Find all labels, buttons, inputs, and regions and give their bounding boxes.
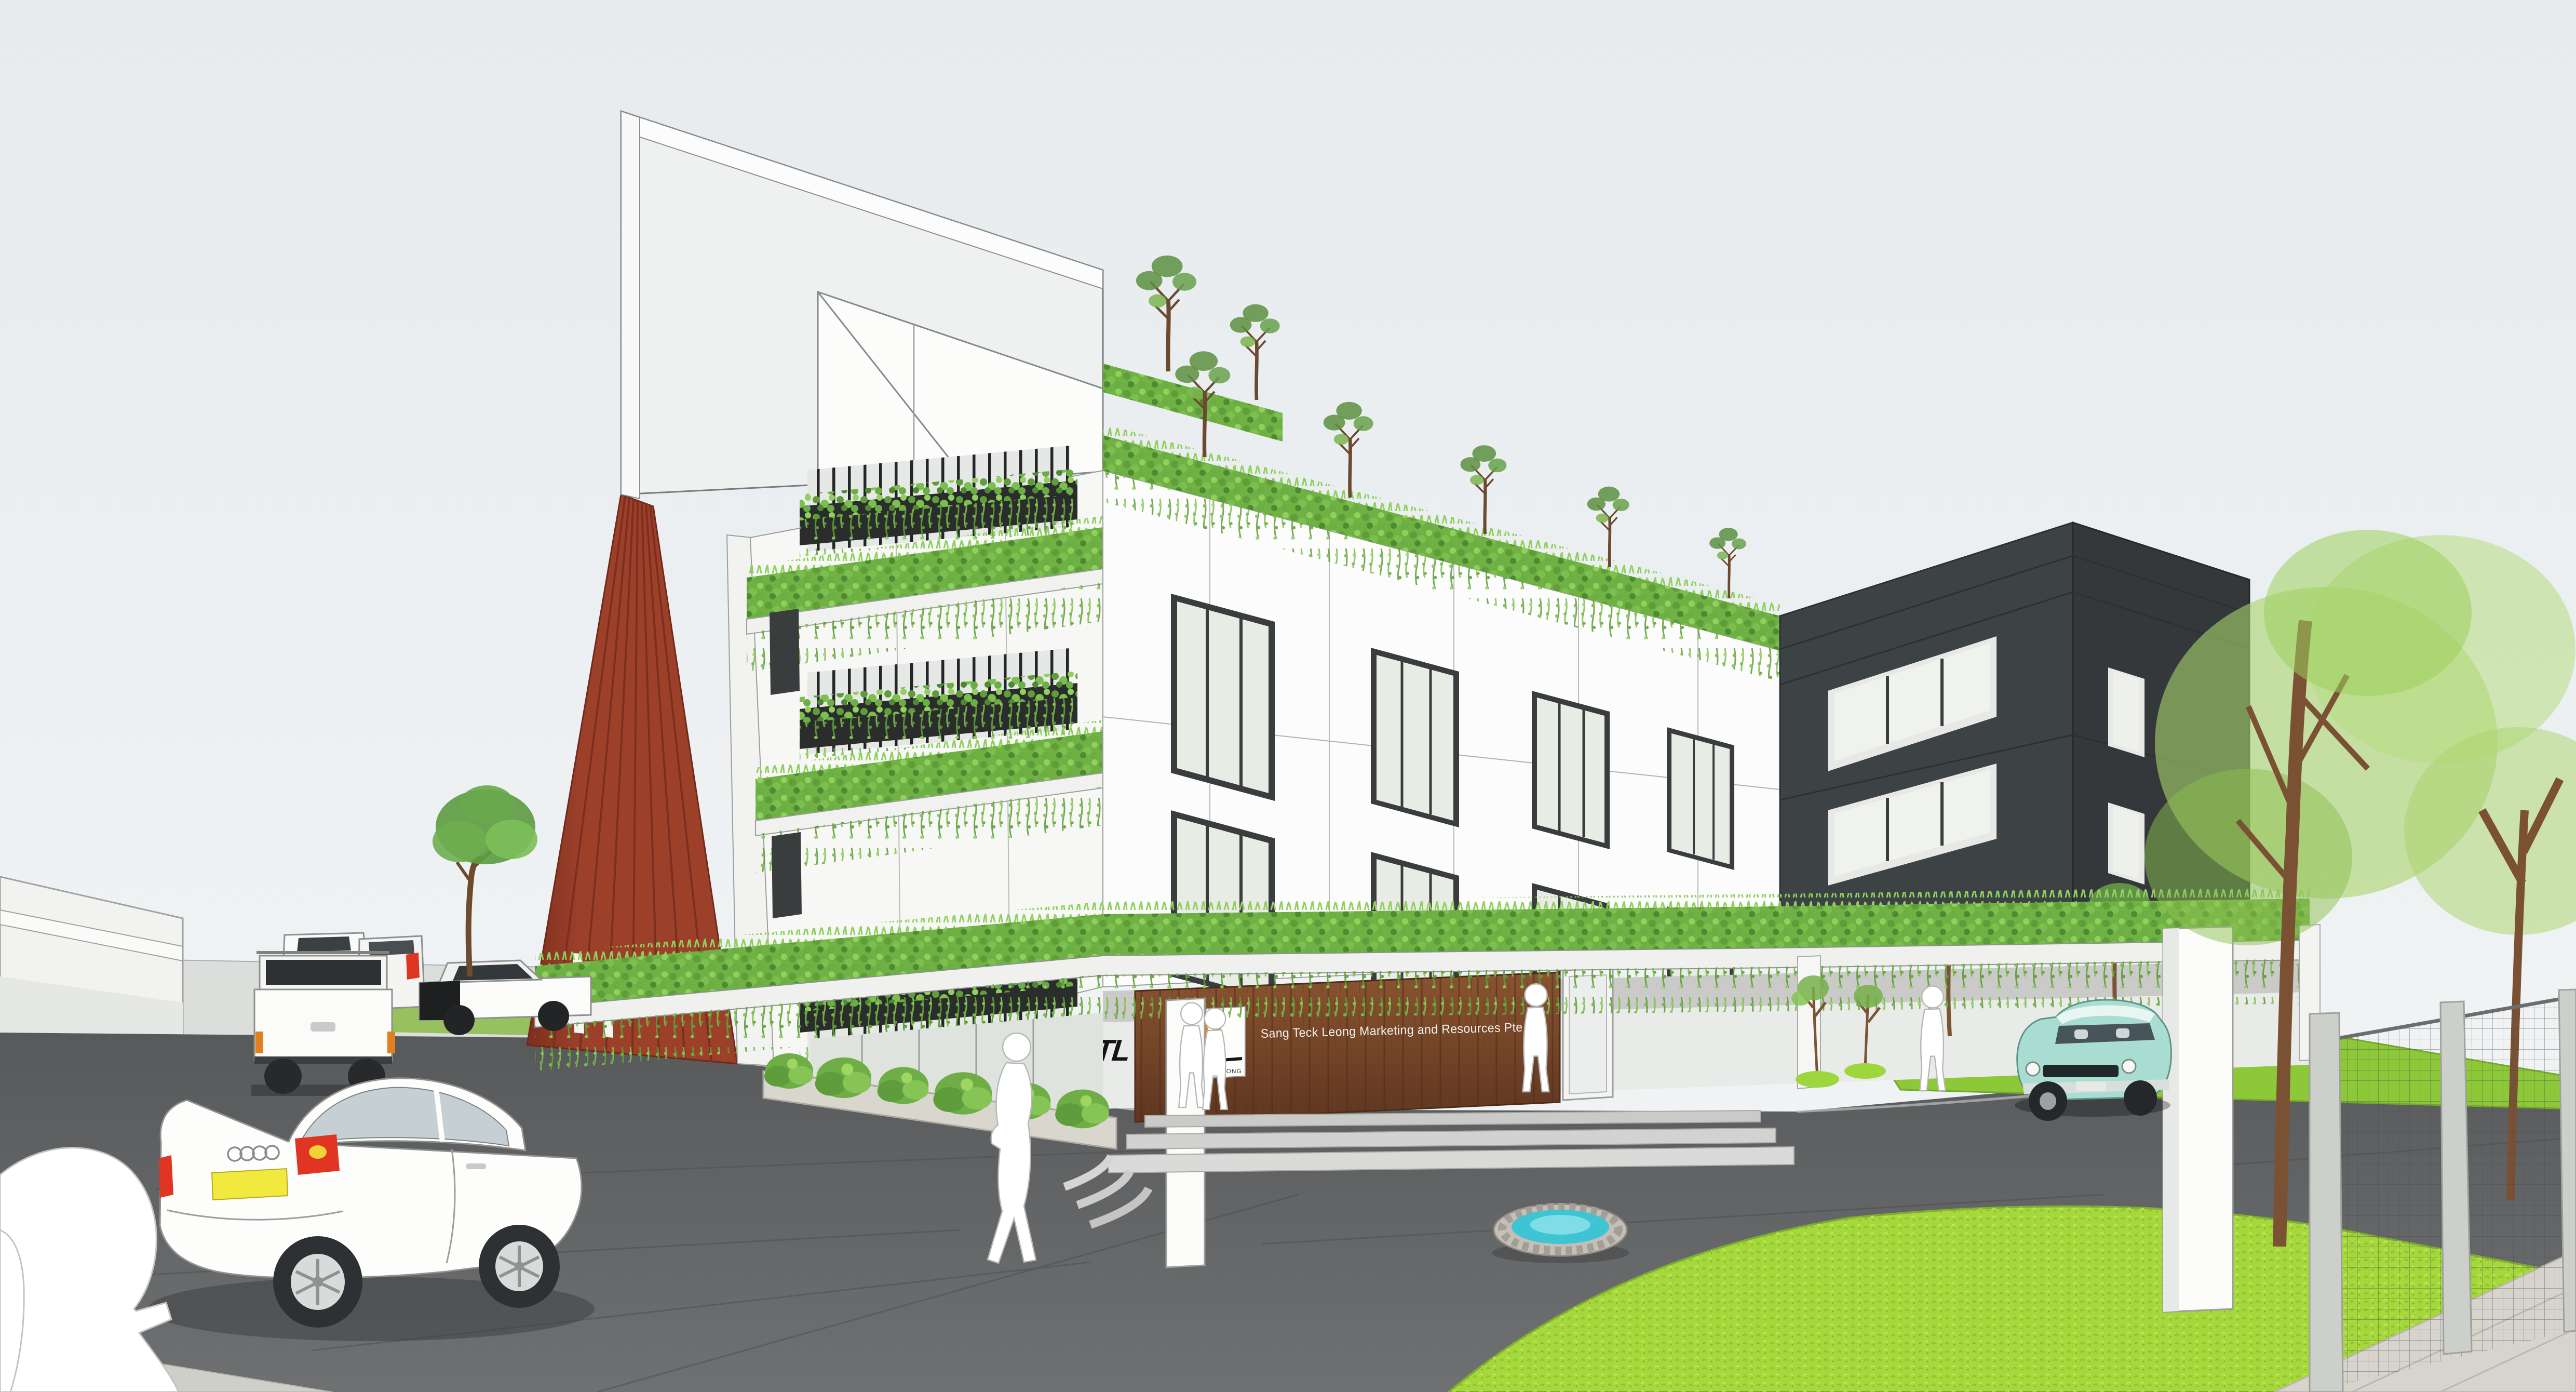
- fountain: [1492, 1204, 1629, 1263]
- window: [1171, 594, 1275, 801]
- wheel: [264, 1059, 302, 1094]
- side-marker: [255, 1032, 263, 1053]
- door-handle: [466, 1163, 486, 1169]
- headlight: [2122, 1060, 2136, 1073]
- rear-window: [266, 960, 381, 985]
- window: [1371, 648, 1459, 827]
- headlight: [2026, 1062, 2040, 1076]
- wheel: [538, 1001, 569, 1031]
- wheel: [273, 1236, 362, 1328]
- fence-post: [2310, 1013, 2343, 1392]
- bright-shrub: [1844, 1063, 1886, 1079]
- annex-window-side: [2108, 802, 2145, 885]
- side-marker: [387, 1032, 395, 1053]
- wheel: [479, 1225, 560, 1308]
- grille-window: [772, 832, 802, 918]
- wire-fence: [2310, 989, 2576, 1392]
- window: [1667, 727, 1734, 870]
- grille: [2043, 1065, 2119, 1077]
- wheel: [2124, 1080, 2157, 1116]
- bright-shrub: [1796, 1071, 1839, 1088]
- annex-window-side: [2108, 667, 2145, 757]
- column-shading: [2163, 928, 2179, 1312]
- scene-canvas: STL SANG TECK LEONG Sang Teck Leong Mark…: [0, 0, 2576, 1392]
- grille-window: [770, 609, 800, 695]
- wheel: [443, 1005, 475, 1035]
- architectural-rendering: STL SANG TECK LEONG Sang Teck Leong Mark…: [0, 0, 2576, 1392]
- window: [1532, 691, 1610, 849]
- license-plate: [212, 1169, 288, 1200]
